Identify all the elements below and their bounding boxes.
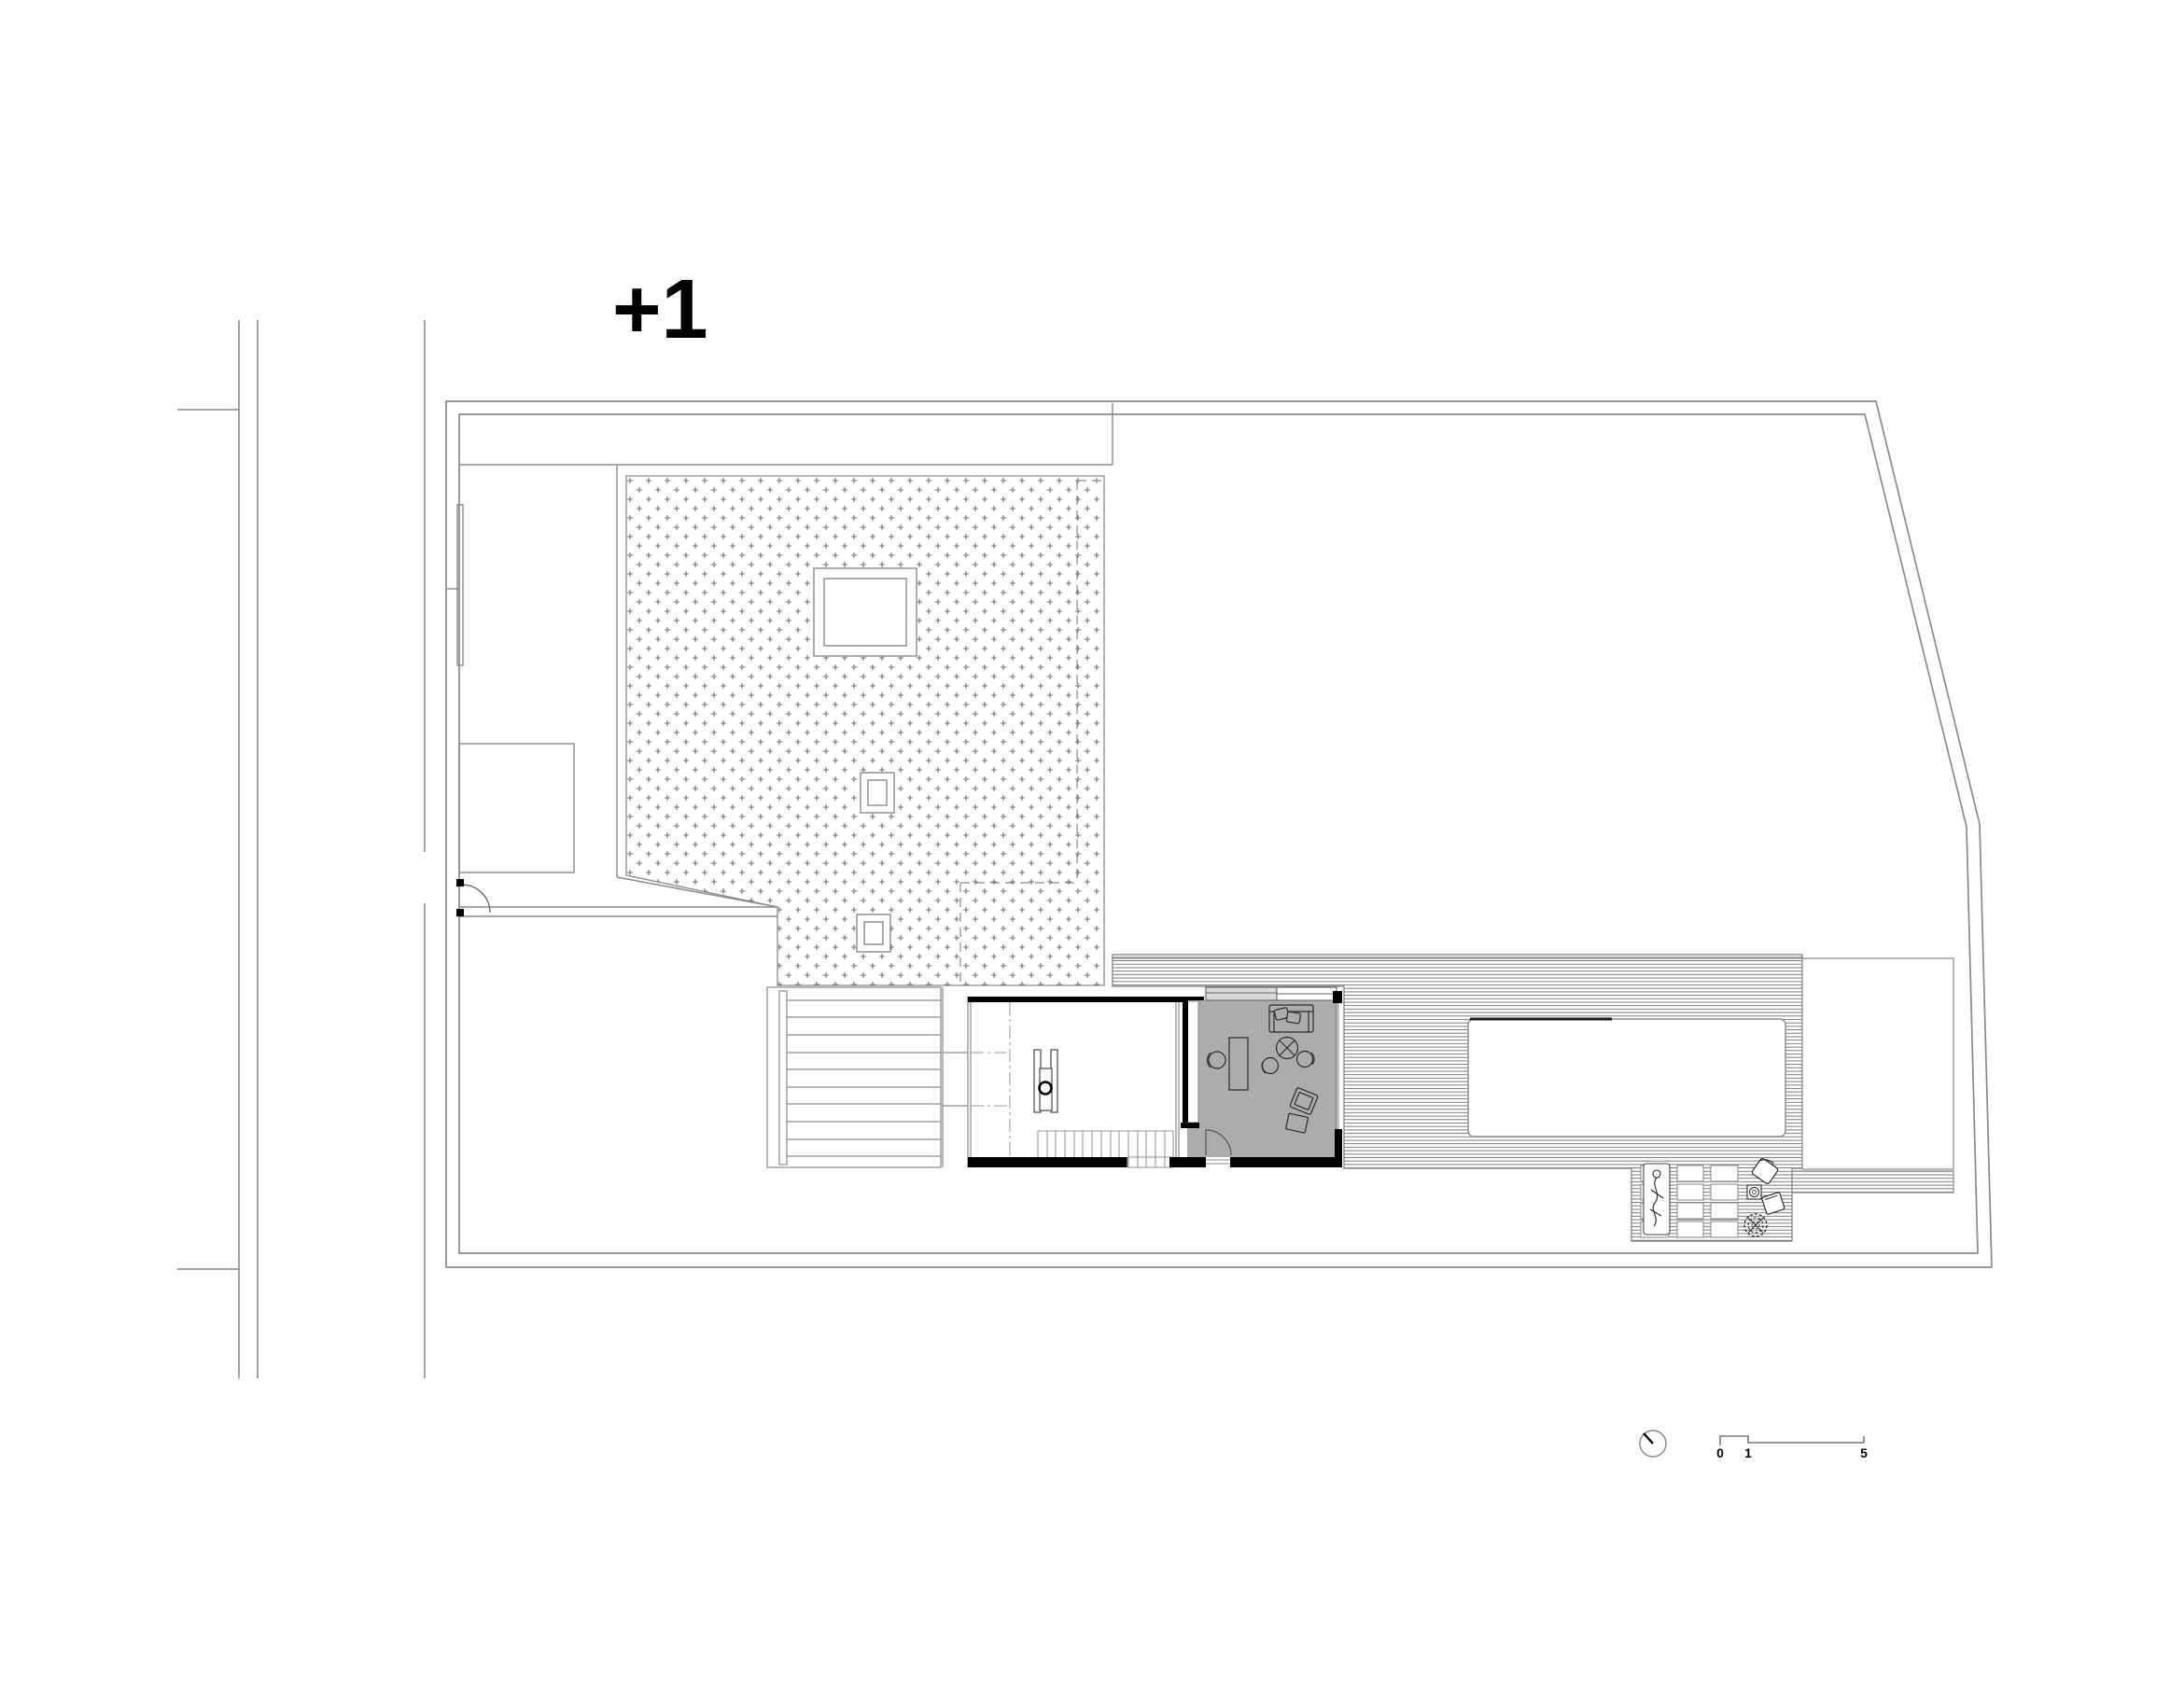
table-chair (1262, 1058, 1278, 1074)
east-wall-pier (1335, 1129, 1342, 1157)
skylight-small (857, 914, 890, 952)
north-window (1206, 987, 1277, 1000)
ottoman (1286, 1113, 1309, 1133)
scale-label-0: 0 (1716, 1445, 1724, 1460)
south-wall (968, 1157, 1127, 1167)
living-room-floor (1187, 1000, 1337, 1157)
gate-jamb (456, 879, 464, 886)
gravel-roof-terrace (626, 476, 1104, 985)
steps-side-beam (779, 991, 787, 1165)
wood-stove (1034, 1050, 1057, 1112)
scale-label-5: 5 (1860, 1445, 1868, 1460)
stair-exit (1127, 1157, 1173, 1167)
west-wall (1183, 997, 1188, 1127)
plan-canvas: 0 1 5 +1 (0, 0, 2184, 1703)
corner-post (1333, 991, 1342, 1003)
floor-level-label: +1 (612, 263, 708, 356)
south-wall-right (1230, 1157, 1342, 1167)
gate-door-swing (456, 879, 490, 916)
sun-lounger (1644, 1164, 1670, 1235)
scale-label-1: 1 (1744, 1445, 1752, 1460)
sofa (1269, 1005, 1313, 1032)
stair-void-niche (1187, 1001, 1198, 1123)
wide-garden-steps (767, 987, 968, 1167)
north-indicator-icon (1640, 1431, 1666, 1457)
swimming-pool (1468, 1019, 1785, 1137)
court-square (459, 744, 574, 872)
studio-room (968, 997, 1204, 1167)
lawn-panel (1802, 958, 1953, 1169)
south-wall-left (1169, 1157, 1206, 1167)
gate-jamb (456, 909, 464, 916)
boundary-fence-wall (457, 505, 463, 665)
floor-plan-sheet: 0 1 5 +1 (0, 0, 2184, 1703)
skylight-large (814, 568, 917, 656)
road-edge (177, 320, 425, 1378)
scale-bar: 0 1 5 (1716, 1436, 1868, 1460)
desk (1229, 1038, 1248, 1090)
living-room (1169, 987, 1342, 1167)
outdoor-table (1747, 1185, 1761, 1199)
garden-path (1792, 1171, 1953, 1193)
round-table (1277, 1038, 1298, 1059)
axis-dashdot-lines (971, 1002, 1010, 1157)
skylight-medium (861, 773, 894, 813)
door-sill (1206, 1160, 1230, 1164)
north-wall (968, 997, 1204, 1002)
